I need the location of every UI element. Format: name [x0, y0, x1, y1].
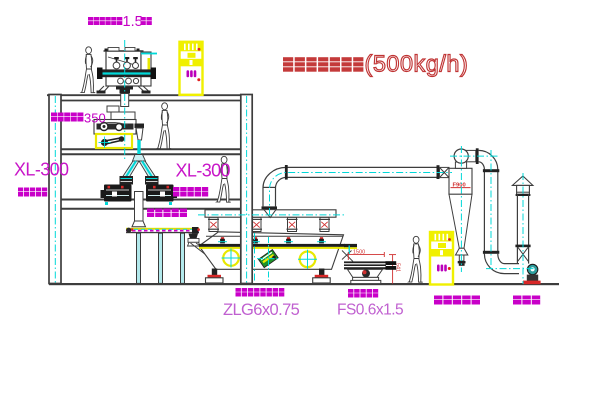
svg-text:ZLG6x0.75: ZLG6x0.75 — [223, 301, 300, 319]
svg-text:F900: F900 — [453, 183, 466, 189]
svg-text:XL-300: XL-300 — [14, 160, 69, 180]
svg-text:1.5: 1.5 — [123, 14, 143, 30]
svg-text:FS0.6x1.5: FS0.6x1.5 — [337, 302, 403, 319]
svg-text:350: 350 — [84, 111, 106, 126]
svg-text:1500: 1500 — [353, 250, 365, 256]
svg-text:XL-300: XL-300 — [176, 161, 231, 181]
svg-text:(500kg/h): (500kg/h) — [365, 51, 469, 77]
